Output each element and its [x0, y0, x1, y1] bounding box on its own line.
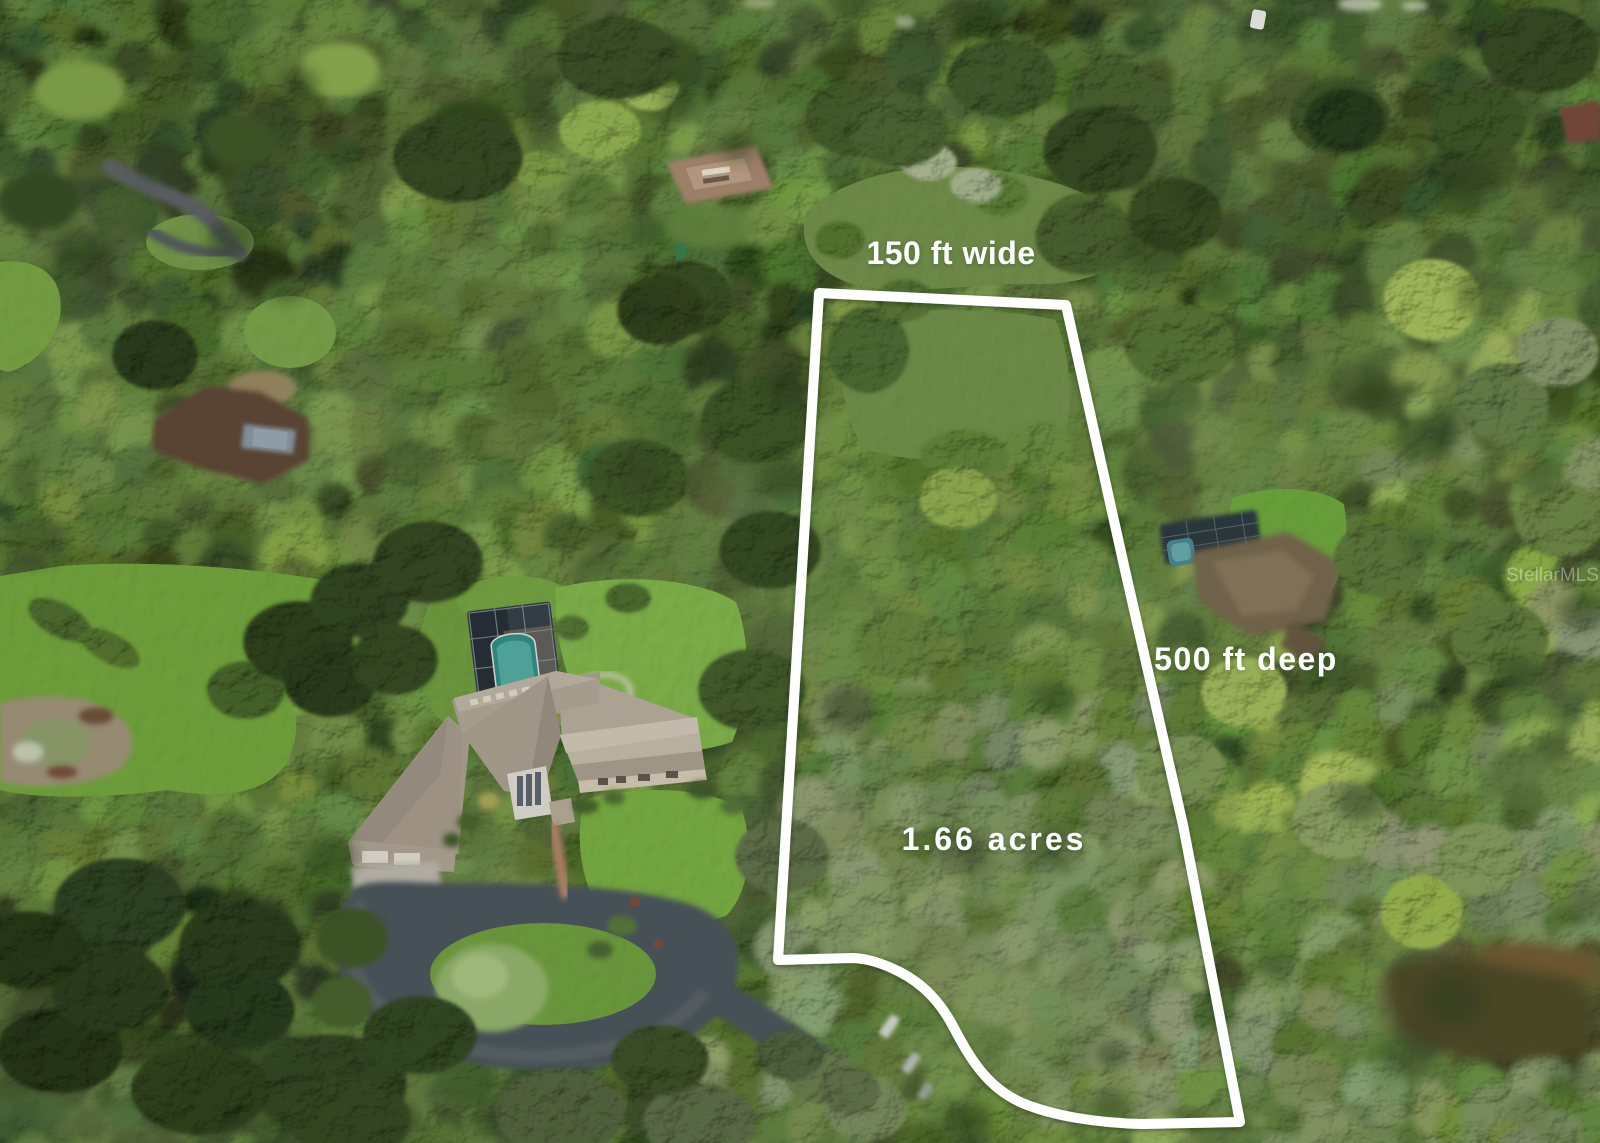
svg-text:1.66 acres: 1.66 acres: [902, 821, 1087, 857]
svg-text:150 ft wide: 150 ft wide: [866, 235, 1035, 271]
svg-text:StellarMLS: StellarMLS: [1506, 565, 1599, 586]
svg-text:500 ft deep: 500 ft deep: [1154, 641, 1338, 677]
